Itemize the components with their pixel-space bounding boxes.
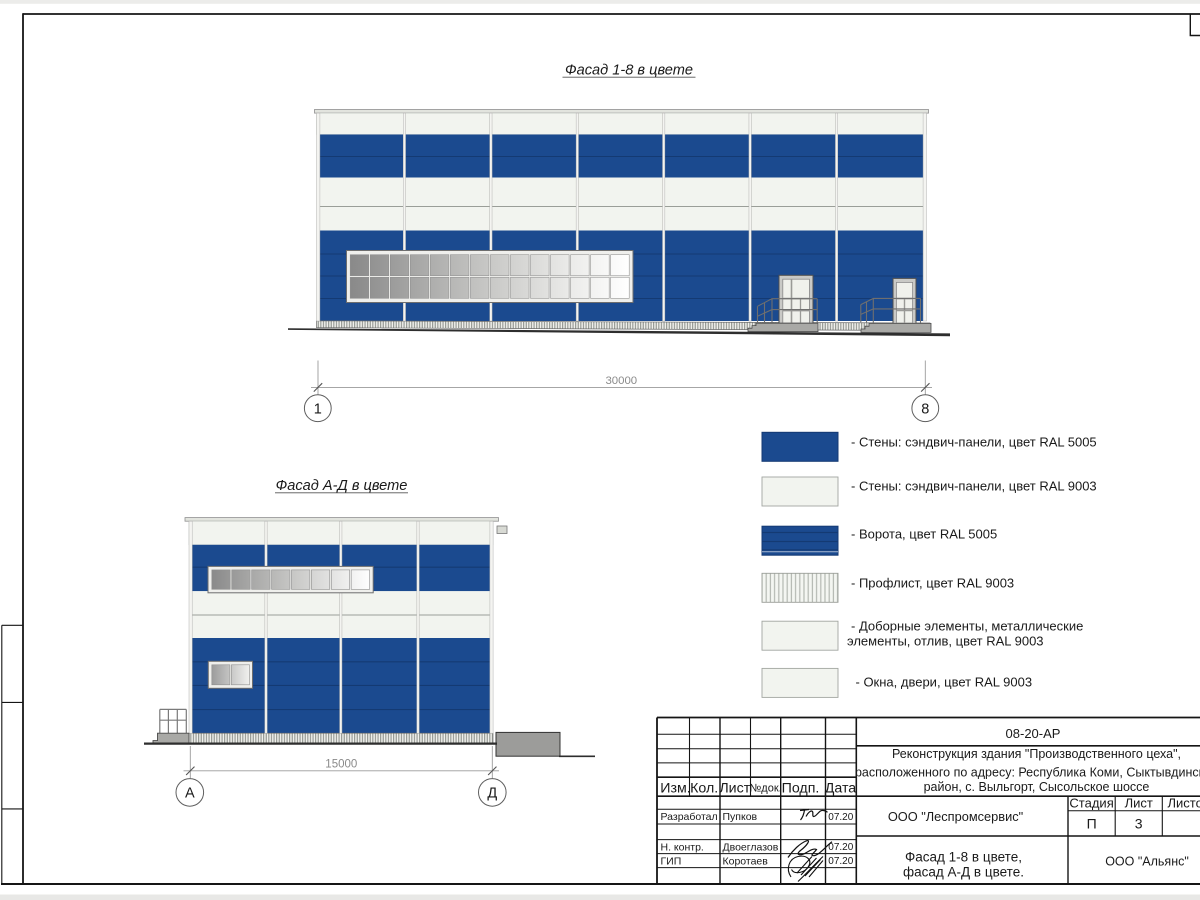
svg-text:- Стены: сэндвич-панели, цвет: - Стены: сэндвич-панели, цвет RAL 5005 (851, 434, 1097, 449)
svg-text:- Профлист, цвет RAL 9003: - Профлист, цвет RAL 9003 (851, 575, 1014, 590)
svg-text:Реконструкция здания "Производ: Реконструкция здания "Производственного … (892, 747, 1181, 761)
svg-text:Пупков: Пупков (723, 811, 758, 823)
svg-text:Фасад 1-8 в цвете,: Фасад 1-8 в цвете, (905, 850, 1022, 865)
svg-text:30000: 30000 (605, 375, 637, 387)
svg-text:3: 3 (1135, 815, 1143, 831)
svg-text:А: А (185, 786, 195, 802)
svg-text:Н. контр.: Н. контр. (661, 841, 704, 853)
svg-text:фасад А-Д в цвете.: фасад А-Д в цвете. (903, 864, 1024, 879)
svg-text:Фасад 1-8 в цвете: Фасад 1-8 в цвете (565, 62, 693, 78)
svg-text:расположенного по адресу: Респ: расположенного по адресу: Республика Ком… (855, 765, 1200, 779)
svg-text:07.20: 07.20 (828, 842, 853, 853)
svg-text:08-20-АР: 08-20-АР (1006, 726, 1061, 741)
svg-text:- Стены: сэндвич-панели, цвет: - Стены: сэндвич-панели, цвет RAL 9003 (851, 478, 1097, 493)
svg-text:ООО "Альянс": ООО "Альянс" (1105, 855, 1189, 869)
svg-text:№док.: №док. (749, 783, 781, 795)
svg-text:15000: 15000 (325, 759, 357, 771)
svg-text:1: 1 (314, 401, 322, 417)
svg-text:Фасад А-Д в цвете: Фасад А-Д в цвете (276, 478, 408, 494)
svg-text:8: 8 (921, 401, 929, 417)
svg-text:Изм.: Изм. (660, 780, 690, 796)
svg-text:Лист: Лист (719, 780, 750, 796)
svg-text:Коротаев: Коротаев (723, 855, 769, 867)
svg-text:Листов: Листов (1167, 796, 1200, 811)
svg-text:- Доборные элементы, металличе: - Доборные элементы, металлические (851, 618, 1083, 633)
svg-text:07.20: 07.20 (828, 856, 853, 867)
svg-text:Стадия: Стадия (1069, 796, 1113, 811)
svg-text:Лист: Лист (1125, 796, 1153, 811)
svg-text:ГИП: ГИП (661, 855, 682, 867)
svg-text:район, с. Выльгорт, Сысольское: район, с. Выльгорт, Сысольское шоссе (924, 780, 1150, 794)
svg-text:Двоеглазов: Двоеглазов (723, 841, 779, 853)
svg-text:Дата: Дата (825, 780, 857, 796)
svg-text:элементы, отлив, цвет RAL 9003: элементы, отлив, цвет RAL 9003 (847, 633, 1044, 648)
svg-text:Разработал: Разработал (661, 811, 718, 823)
svg-text:ООО "Леспромсервис": ООО "Леспромсервис" (888, 809, 1023, 824)
svg-text:- Окна, двери, цвет RAL 9003: - Окна, двери, цвет RAL 9003 (856, 674, 1033, 689)
svg-text:Д: Д (487, 786, 497, 802)
svg-text:07.20: 07.20 (828, 812, 853, 823)
svg-text:П: П (1087, 815, 1097, 831)
svg-text:Подп.: Подп. (782, 780, 820, 796)
svg-text:Кол.: Кол. (690, 780, 718, 796)
svg-text:- Ворота, цвет RAL 5005: - Ворота, цвет RAL 5005 (851, 526, 997, 541)
